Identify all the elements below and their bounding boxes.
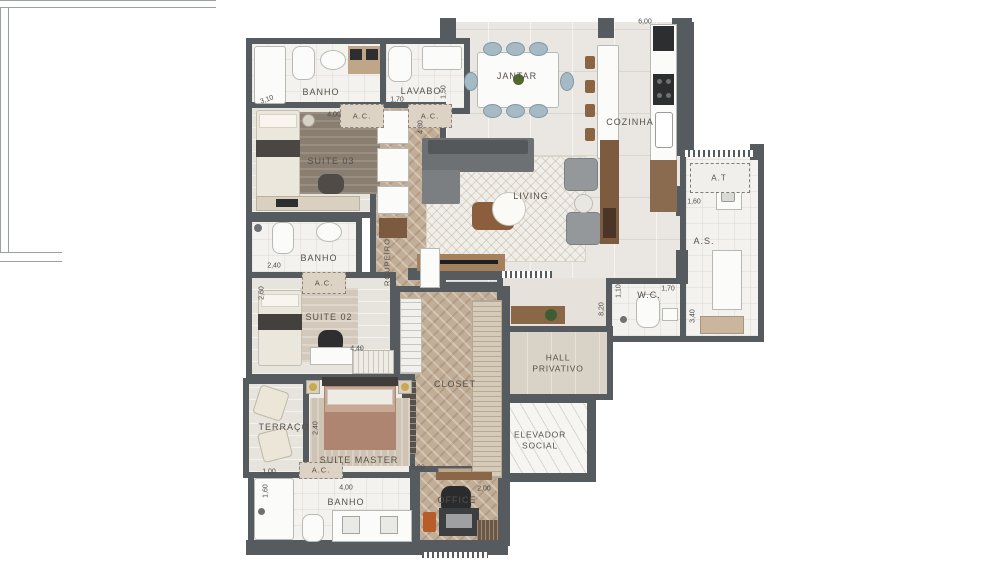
dining-chair-icon [560,72,574,91]
dimension-label: 2,40 [313,421,320,435]
room-label-as: A.S. [693,236,714,246]
dimension-label: 1,60 [687,199,701,206]
ac-label: A.C. [353,112,372,121]
basin-icon [380,516,398,534]
office-shelf [436,472,492,480]
sofa-chaise [422,170,460,204]
room-label-terraco: TERRAÇO [258,422,309,432]
room-label-elevador-social: ELEVADORSOCIAL [514,429,566,450]
room-label-office: OFFICE [438,495,477,505]
laptop-icon [446,514,472,528]
armchair [564,158,598,191]
hatch-wall [500,271,552,278]
dimension-label: 8,20 [599,302,606,316]
room-label-lavabo: LAVABO [401,86,442,96]
wardrobe-unit [377,186,409,214]
window [0,0,216,8]
tv-icon [438,260,498,264]
room-label-hall-privativo: HALLPRIVATIVO [532,352,583,373]
room-label-roupeiro: ROUPEIRO [383,238,392,286]
room-label-banho-2: BANHO [300,253,337,263]
dimension-label: 1,10 [616,284,623,298]
dimension-label: 1,70 [390,97,404,104]
toilet-icon [292,46,315,80]
sink-icon [655,112,673,148]
laundry-counter [712,250,742,310]
ac-label: A.C. [315,279,334,288]
wardrobe-unit [377,148,409,182]
hatch-wall [422,552,488,558]
dimension-label: 1,50 [441,85,448,99]
hall-line2: PRIVATIVO [532,363,583,373]
cooktop-icon [653,74,674,105]
washbasin-icon [422,46,462,70]
wall [676,250,688,284]
room-label-living: LIVING [513,191,549,201]
laundry-cabinet [700,316,744,334]
room-label-suite-03: SUITE 03 [307,156,354,166]
dining-chair-icon [529,42,548,56]
window [0,8,9,70]
window [0,134,9,206]
shower-head-icon [258,508,265,515]
stool-icon [423,512,436,532]
dimension-label: 3,40 [690,309,697,323]
stool-icon [585,80,595,93]
armchair [566,212,601,245]
wardrobe-unit [420,248,440,288]
room-label-closet: CLOSET [434,379,476,389]
dimension-label: 4,00 [339,485,353,492]
burner-icon [666,93,671,98]
sofa-cushions [428,140,528,154]
hall-line1: HALL [546,352,570,362]
dimension-label: 1,00 [262,469,276,476]
room-label-banho-1: BANHO [302,87,339,97]
basin-icon [366,49,378,60]
wall-post [598,18,614,38]
wall [676,22,692,156]
bed-headboard [322,377,398,386]
room-label-wc: W.C. [637,290,661,300]
washbasin-icon [320,50,346,70]
room-label-cozinha: COZINHA [606,117,654,127]
basin-icon [350,49,362,60]
hatch-wall [683,150,753,157]
washbasin-icon [662,308,678,321]
wardrobe-unit [379,218,407,238]
dresser [256,196,360,211]
bed-blanket [324,412,396,450]
lamp-icon [401,383,409,391]
shower-icon [254,224,262,232]
wine-rack-icon [603,208,616,238]
bed-runner [256,140,300,157]
elevador-line2: SOCIAL [522,440,558,450]
dining-chair-icon [483,42,502,56]
dining-chair-icon [464,72,478,91]
burner-icon [657,79,662,84]
wall [676,186,686,216]
tv-icon [276,199,298,207]
room-label-suite-02: SUITE 02 [305,312,352,322]
lamp-icon [309,383,317,391]
dimension-label: 1,60 [263,484,270,498]
burner-icon [666,79,671,84]
ac-label: A.C. [312,466,331,475]
pillow-icon [261,294,299,307]
closet-shelves [400,298,422,374]
dimension-label: 2,00 [477,486,491,493]
stool-icon [585,56,595,69]
room-banho-suite-02 [246,216,362,278]
stool-icon [585,128,595,141]
toilet-icon [302,514,324,542]
window [0,252,62,262]
burner-icon [657,93,662,98]
dining-chair-icon [506,42,525,56]
dining-chair-icon [506,104,525,118]
dimension-label: 5,00 [411,465,425,472]
closet-shelves [472,300,502,478]
dimension-label: 2,60 [259,286,266,300]
dining-chair-icon [483,104,502,118]
window [0,206,9,252]
dining-chair-icon [529,104,548,118]
wardrobe-unit [352,350,394,374]
lamp-icon [302,114,315,127]
floor-plan: JANTAR COZINHA LIVING BANHO LAVABO SUITE… [0,0,1000,562]
dimension-label: 4,40 [350,346,364,353]
elevador-line1: ELEVADOR [514,429,566,439]
room-label-suite-master: SUITE MASTER [320,455,399,465]
room-label-at: A.T [711,174,726,183]
dimension-label: 2,40 [267,263,281,270]
shower-head-icon [620,316,627,323]
basin-icon [342,516,360,534]
wall-post [440,18,456,38]
pillow-icon [259,114,297,128]
side-table [574,194,593,213]
room-label-jantar: JANTAR [497,71,537,81]
dimension-label: 4,30 [418,120,425,134]
armchair [318,174,344,194]
dimension-label: 6,00 [638,19,652,26]
fridge-icon [653,26,674,51]
dimension-label: 1,70 [661,286,675,293]
bed-runner [258,314,302,330]
stool-icon [585,104,595,117]
dimension-label: 4,00 [327,112,341,119]
room-label-banho-master: BANHO [327,497,364,507]
kitchen-cabinet [650,160,677,212]
window [0,70,9,134]
toilet-icon [388,46,412,82]
pillow-icon [327,389,393,405]
toilet-icon [272,222,294,254]
washbasin-icon [316,222,342,242]
storage-rack [477,520,499,540]
plant-icon [545,309,557,321]
